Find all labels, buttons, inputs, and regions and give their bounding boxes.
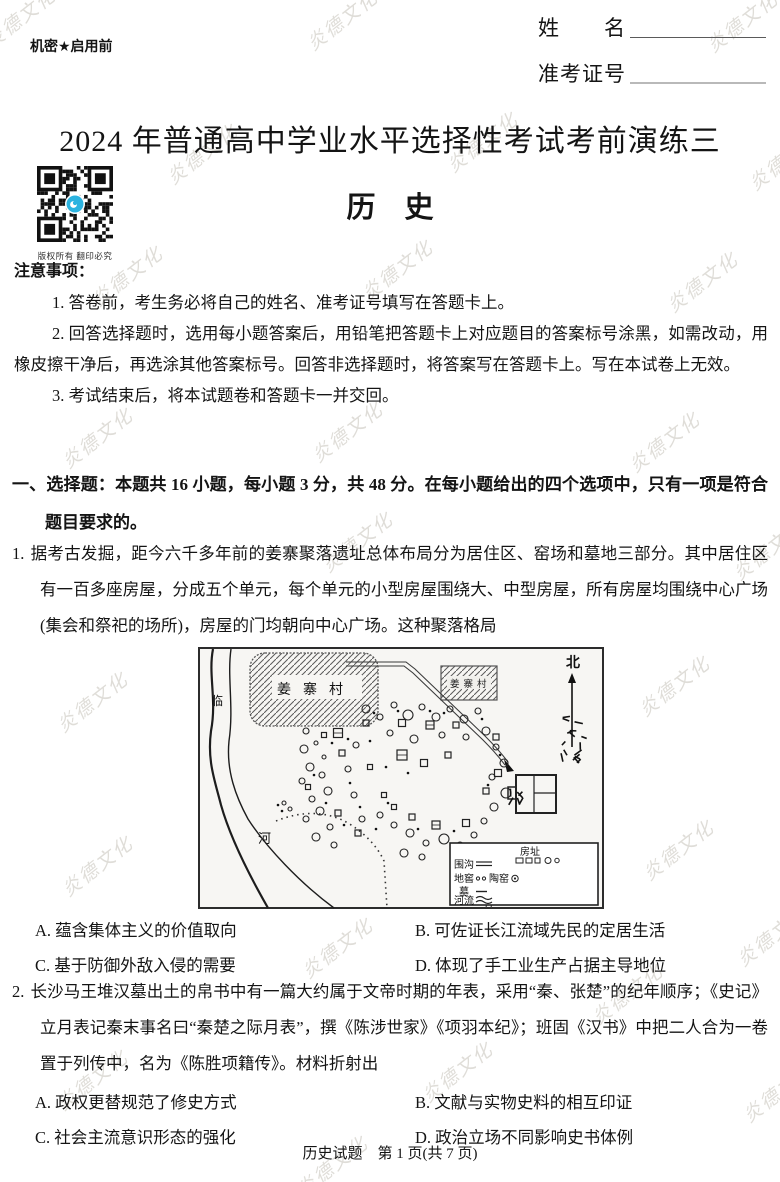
river-label-top: 临 (211, 694, 223, 708)
question-1-options: A. 蕴含集体主义的价值取向 B. 可佐证长江流域先民的定居生活 C. 基于防御… (12, 913, 768, 983)
north-label: 北 (566, 655, 580, 671)
question-2-number: 2. (12, 982, 24, 1001)
subject-title: 历 史 (0, 184, 780, 226)
notice-heading: 注意事项： (14, 256, 768, 287)
notice-item-3: 3. 考试结束后，将本试题卷和答题卡一并交回。 (14, 380, 768, 411)
confidential-label: 机密★启用前 (30, 36, 113, 56)
question-2-stem: 2.长沙马王堆汉墓出土的帛书中有一篇大约属于文帝时期的年表，采用“秦、张楚”的纪… (12, 974, 768, 1082)
name-field: 姓 名 (538, 12, 766, 42)
page-footer: 历史试题 第 1 页(共 7 页) (0, 1142, 780, 1163)
question-1-stem: 1.据考古发掘，距今六千多年前的姜寨聚落遗址总体布局分为居住区、窑场和墓地三部分… (12, 536, 768, 644)
question-1-option-b: B. 可佐证长江流域先民的定居生活 (415, 913, 768, 948)
watermark-text: 炎德文化 (301, 0, 384, 56)
question-2-option-b: B. 文献与实物史料的相互印证 (415, 1085, 768, 1120)
legend-cellar-label: 地窖 (454, 872, 474, 885)
village-label-small: 姜寨村 (450, 678, 491, 690)
question-2-option-a: A. 政权更替规范了修史方式 (35, 1085, 415, 1120)
section-heading: 一、选择题：本题共 16 小题，每小题 3 分，共 48 分。在每小题给出的四个… (12, 466, 768, 542)
ticket-number-label: 准考证号 (538, 58, 626, 88)
question-1: 1.据考古发掘，距今六千多年前的姜寨聚落遗址总体布局分为居住区、窑场和墓地三部分… (12, 536, 768, 983)
question-1-number: 1. (12, 544, 24, 563)
exam-paper-page: 炎德文化炎德文化炎德文化炎德文化炎德文化炎德文化炎德文化炎德文化炎德文化炎德文化… (0, 0, 780, 1182)
ticket-number-fill-line (630, 81, 766, 84)
settlement-map-svg: 临 河 姜寨村 姜寨村 (198, 647, 605, 910)
question-2: 2.长沙马王堆汉墓出土的帛书中有一篇大约属于文帝时期的年表，采用“秦、张楚”的纪… (12, 974, 768, 1155)
question-1-option-a: A. 蕴含集体主义的价值取向 (35, 913, 415, 948)
legend-river-label: 河流 (454, 894, 474, 907)
legend-house-label: 房址 (520, 845, 540, 858)
map-legend: 房址 围沟 地窖 陶窑 墓 河流 (450, 843, 598, 907)
notice-section: 注意事项： 1. 答卷前，考生务必将自己的姓名、准考证号填写在答题卡上。 2. … (14, 256, 768, 411)
student-info-fields: 姓 名 准考证号 (538, 12, 766, 104)
jiangzhai-settlement-map: 临 河 姜寨村 姜寨村 (198, 647, 605, 910)
river-label-bottom: 河 (258, 831, 271, 846)
watermark-text: 炎德文化 (56, 401, 139, 474)
notice-item-2: 2. 回答选择题时，选用每小题答案后，用铅笔把答题卡上对应题目的答案标号涂黑，如… (14, 318, 768, 380)
question-2-text: 长沙马王堆汉墓出土的帛书中有一篇大约属于文帝时期的年表，采用“秦、张楚”的纪年顺… (30, 982, 768, 1073)
name-fill-line (630, 36, 766, 38)
legend-ditch-label: 围沟 (454, 858, 474, 871)
village-label-large: 姜寨村 (277, 681, 355, 698)
name-label: 姓 名 (538, 12, 626, 42)
ticket-number-field: 准考证号 (538, 58, 766, 88)
exam-title: 2024 年普通高中学业水平选择性考试考前演练三 (0, 116, 780, 160)
question-1-text: 据考古发掘，距今六千多年前的姜寨聚落遗址总体布局分为居住区、窑场和墓地三部分。其… (30, 544, 768, 635)
legend-kiln-label: 陶窑 (489, 872, 509, 885)
notice-item-1: 1. 答卷前，考生务必将自己的姓名、准考证号填写在答题卡上。 (14, 287, 768, 318)
